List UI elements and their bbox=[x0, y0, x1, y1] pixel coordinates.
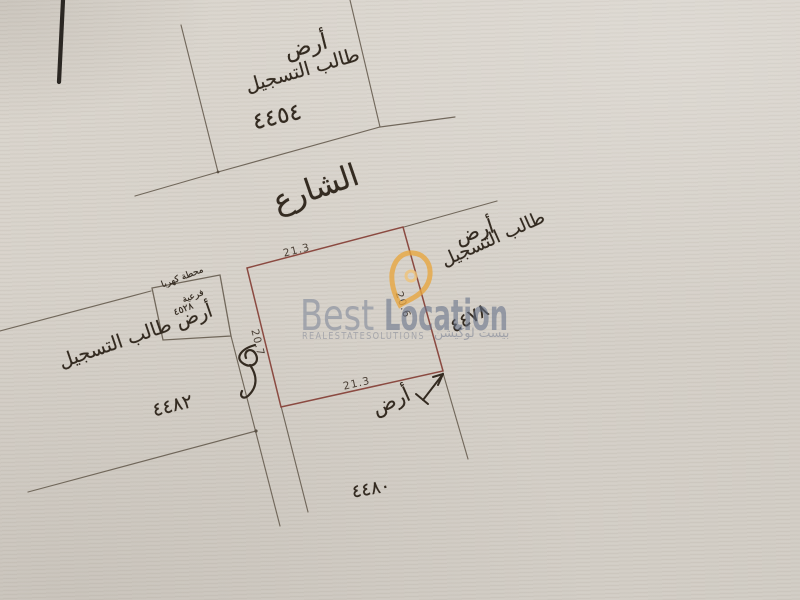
hand-drawn-arrow bbox=[416, 374, 443, 404]
west-parcel-bottom-line bbox=[28, 431, 256, 492]
watermark-location-pin-icon bbox=[386, 248, 436, 312]
page-edge-pen-mark bbox=[59, 0, 63, 82]
junction-dot bbox=[254, 429, 257, 432]
west-parcel-top-line bbox=[0, 291, 151, 331]
junction-dot bbox=[217, 171, 220, 174]
passage-right-line bbox=[281, 406, 308, 512]
north-parcel-left-line bbox=[181, 25, 218, 172]
watermark-tagline: REALESTATESOLUTIONS bbox=[302, 331, 425, 342]
watermark-arabic-name: بيست لوكيشن bbox=[434, 325, 509, 340]
east-south-divider-line bbox=[443, 373, 468, 459]
scanned-survey-sheet: أرض طالب التسجيل ٤٤٥٤ الشارع أرض طالب ال… bbox=[0, 0, 800, 600]
